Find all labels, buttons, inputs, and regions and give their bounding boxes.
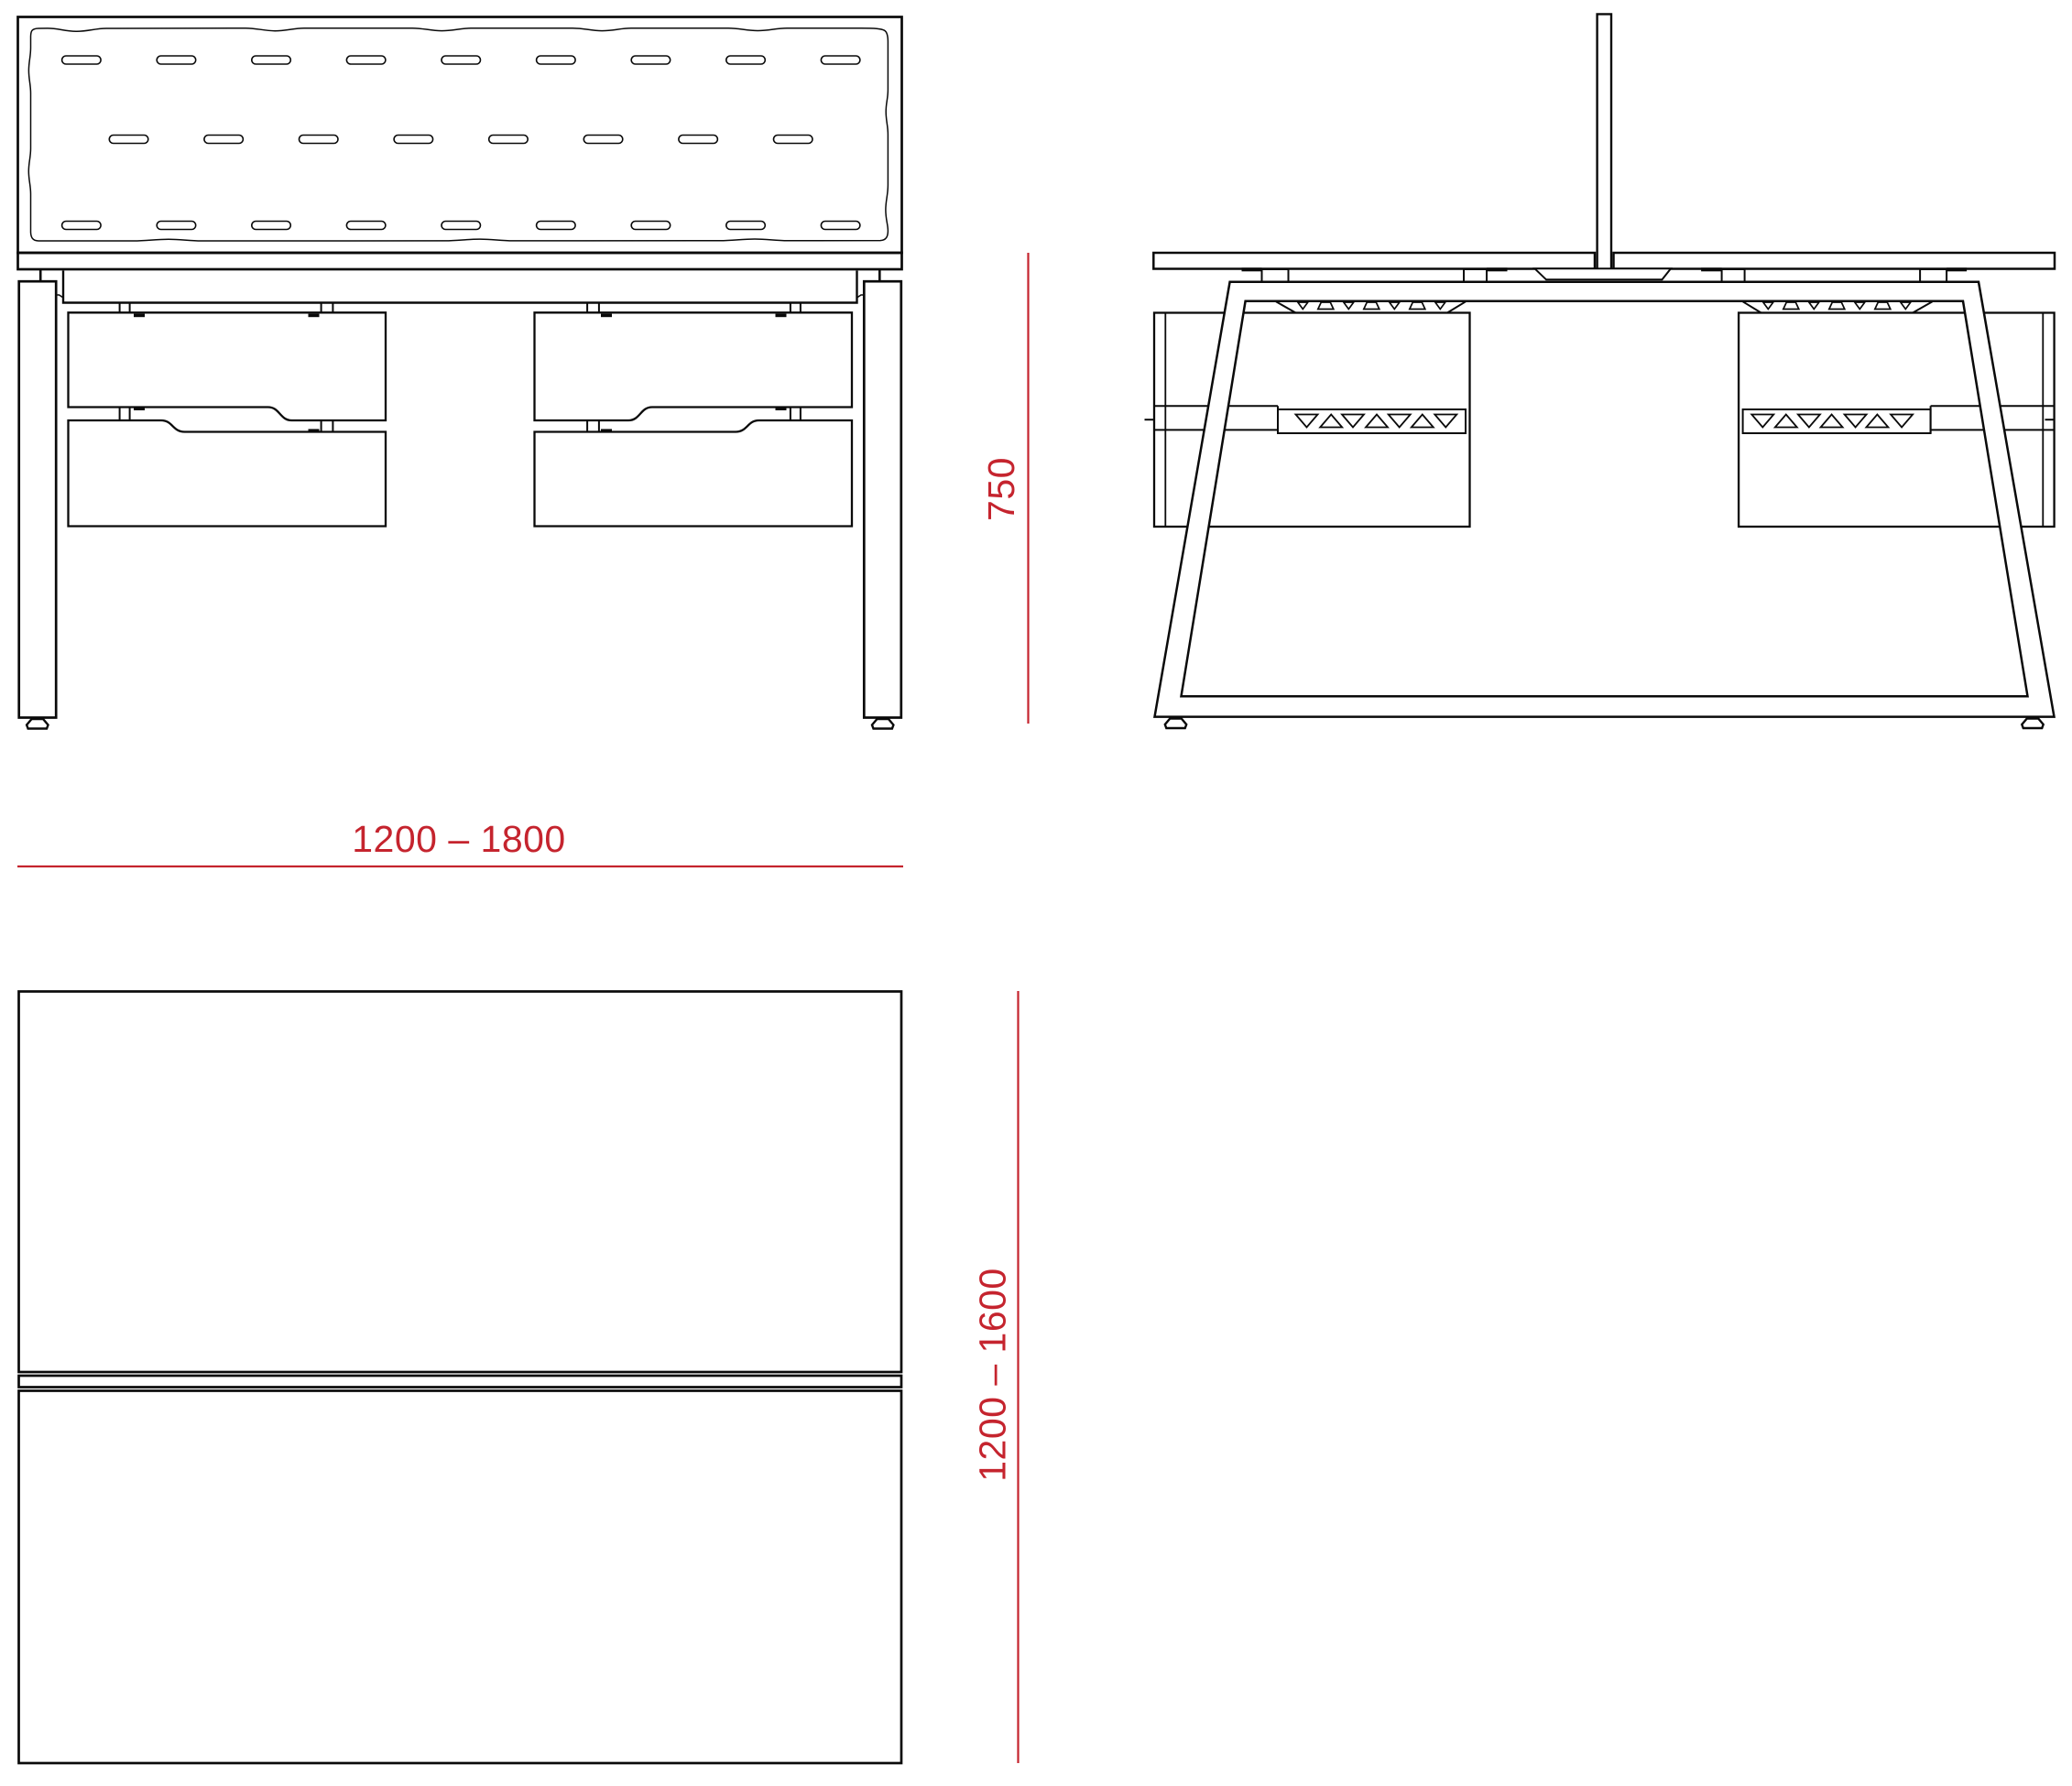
- svg-text:750: 750: [980, 457, 1022, 521]
- svg-text:1200 – 1600: 1200 – 1600: [972, 1268, 1014, 1482]
- svg-text:1200 – 1800: 1200 – 1800: [352, 818, 566, 860]
